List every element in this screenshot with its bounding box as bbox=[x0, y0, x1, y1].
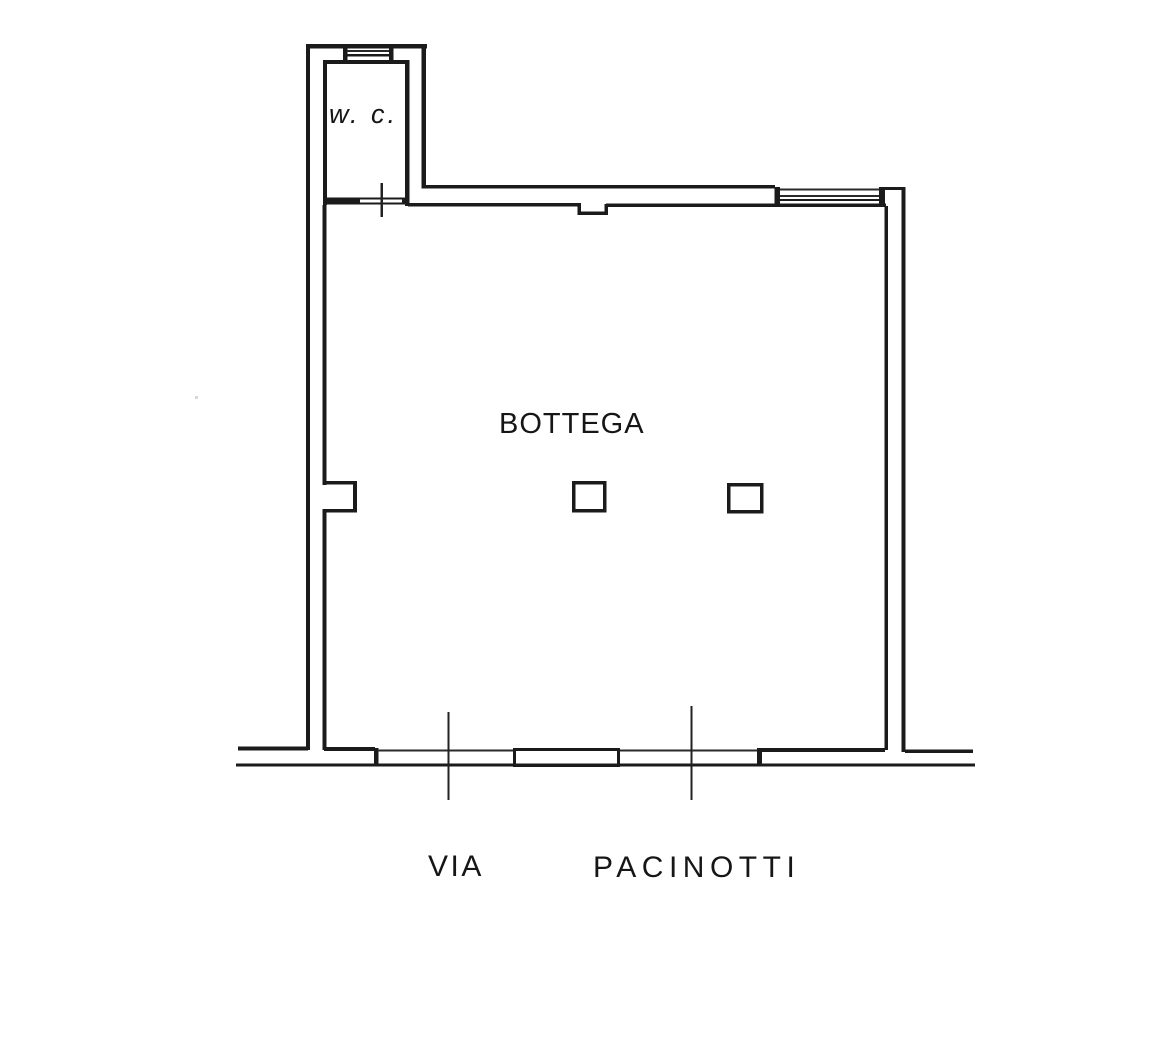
svg-text:VIA: VIA bbox=[428, 850, 484, 883]
svg-text:BOTTEGA: BOTTEGA bbox=[499, 408, 645, 440]
svg-text:w. c.: w. c. bbox=[329, 99, 398, 129]
svg-text:PACINOTTI: PACINOTTI bbox=[593, 851, 800, 884]
